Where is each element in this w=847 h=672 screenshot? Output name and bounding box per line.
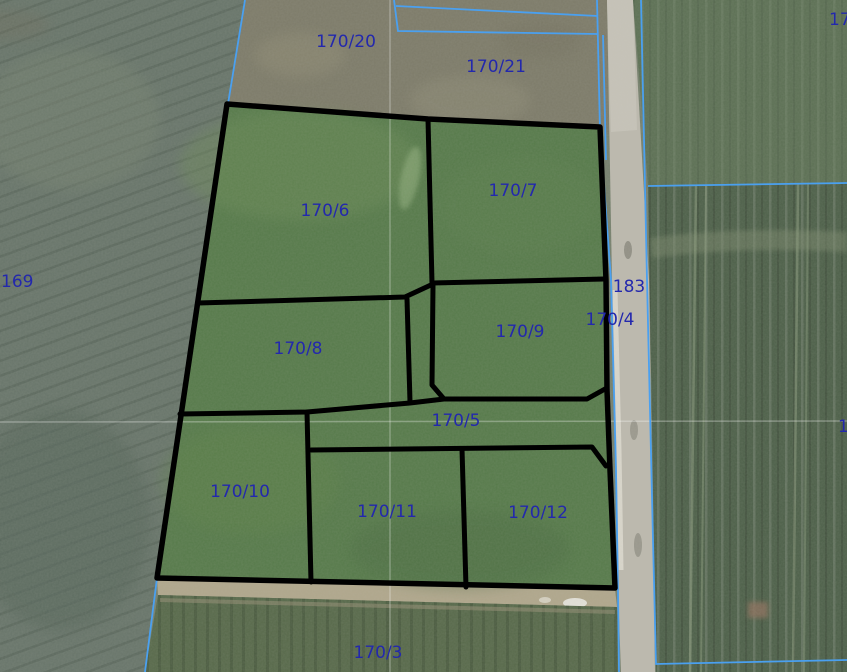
map-canvas[interactable]: 169 170/20 170/21 17 170/6 170/7 183 170… bbox=[0, 0, 847, 672]
parcel-label-183: 183 bbox=[613, 277, 645, 297]
parcel-label-170-3: 170/3 bbox=[354, 643, 403, 663]
parcel-label-170-10: 170/10 bbox=[210, 482, 270, 502]
parcel-label-169: 169 bbox=[1, 272, 33, 292]
parcel-label-170-21: 170/21 bbox=[466, 57, 526, 77]
parcel-label-17-truncated: 17 bbox=[829, 10, 847, 30]
parcel-label-170-9: 170/9 bbox=[496, 322, 545, 342]
parcel-label-170-20: 170/20 bbox=[316, 32, 376, 52]
parcel-label-170-12: 170/12 bbox=[508, 503, 568, 523]
parcel-label-170-8: 170/8 bbox=[274, 339, 323, 359]
parcel-170-7[interactable] bbox=[428, 119, 604, 283]
parcel-label-170-7: 170/7 bbox=[489, 181, 538, 201]
parcel-label-170-6: 170/6 bbox=[301, 201, 350, 221]
parcel-label-170-4: 170/4 bbox=[586, 310, 635, 330]
parcel-label-1-truncated: 1 bbox=[838, 417, 847, 437]
parcel-label-170-5: 170/5 bbox=[432, 411, 481, 431]
parcel-label-170-11: 170/11 bbox=[357, 502, 417, 522]
